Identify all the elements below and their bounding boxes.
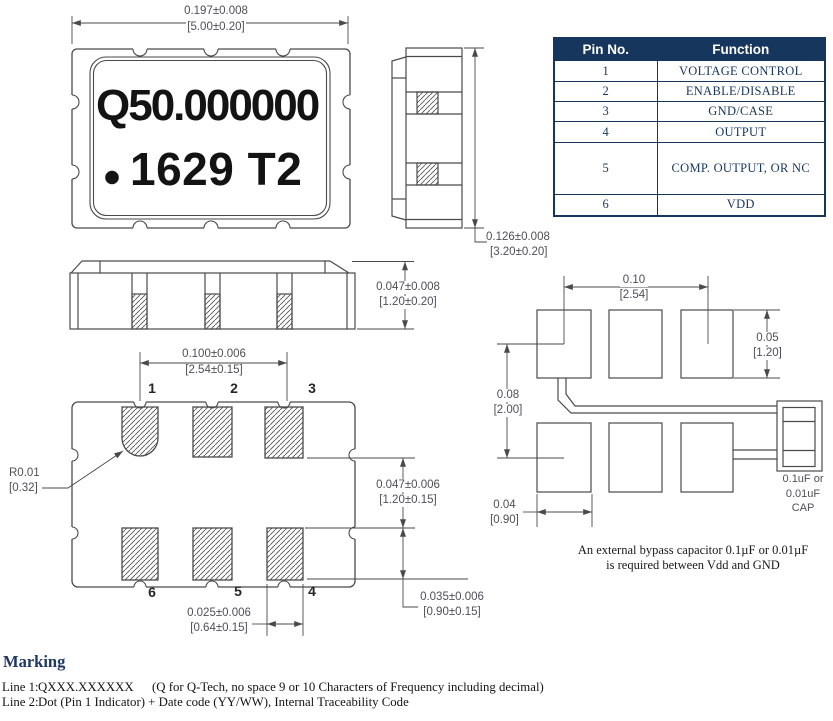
marking-line1: Line 1: QXXX.XXXXXX (Q for Q-Tech, no sp… [2, 680, 830, 695]
table-row: 4 OUTPUT [554, 122, 825, 143]
table-row: 3 GND/CASE [554, 102, 825, 122]
dim-pad-width-inch: 0.025±0.006 [186, 607, 252, 620]
pin-label-5: 5 [230, 584, 246, 598]
marking-line2-label: Line 2: [2, 695, 39, 710]
pad-pin5 [193, 528, 232, 580]
marking-line2-value: Dot (Pin 1 Indicator) + Date code (YY/WW… [38, 695, 409, 710]
lp-row-spacing-mm: [2.00] [491, 404, 525, 417]
dim-body-height-mm: [3.20±0.20] [490, 246, 547, 259]
marking-date-code: 1629 T2 [130, 146, 320, 192]
bypass-note-line2: is required between Vdd and GND [540, 558, 833, 572]
front-view [70, 261, 414, 329]
lp-row-spacing-inch: 0.08 [494, 389, 522, 402]
bypass-note-line1: An external bypass capacitor 0.1µF or 0.… [540, 543, 833, 557]
datasheet-drawing-page: Q50.000000 1629 T2 0.197±0.008 [5.00±0.2… [0, 0, 833, 721]
pin1-indicator-dot [105, 171, 119, 185]
table-row: 6 VDD [554, 195, 825, 216]
table-row: 5 COMP. OUTPUT, OR NC [554, 143, 825, 195]
pad-pin3 [265, 407, 303, 458]
marking-frequency: Q50.000000 [96, 84, 332, 128]
dim-pin1-radius-mm: [0.32] [9, 482, 38, 495]
vdd-trace [558, 378, 777, 413]
marking-line1-note: (Q for Q-Tech, no space 9 or 10 Characte… [152, 680, 544, 695]
cap-value-label: 0.1uF or [773, 473, 833, 486]
dim-seated-height-mm: [1.20±0.20] [377, 296, 439, 309]
lp-pad-width-mm: [0.90] [488, 514, 521, 527]
pin-function-table: Pin No. Function 1 VOLTAGE CONTROL 2 ENA… [553, 37, 826, 217]
pin-table-header-function: Function [657, 38, 825, 61]
pad-pin4 [267, 528, 303, 580]
pad-pin1 [122, 407, 158, 456]
marking-line2: Line 2: Dot (Pin 1 Indicator) + Date cod… [2, 695, 830, 710]
lp-pad-width-inch: 0.04 [491, 499, 518, 512]
table-row: 1 VOLTAGE CONTROL [554, 61, 825, 82]
dim-pad-length-mm: [0.90±0.15] [421, 606, 483, 619]
pin-table-header-pin: Pin No. [554, 38, 657, 61]
cap-label: CAP [773, 502, 833, 515]
dim-body-height-inch: 0.126±0.008 [486, 231, 550, 244]
pin-label-3: 3 [304, 381, 320, 395]
cap-value-label2: 0.01uF [773, 488, 833, 501]
table-row: 2 ENABLE/DISABLE [554, 82, 825, 102]
dim-seated-height-inch: 0.047±0.008 [374, 281, 442, 294]
pin-label-4: 4 [304, 584, 320, 598]
lp-pad-height-mm: [1.20] [751, 347, 784, 360]
marking-line1-label: Line 1: [2, 680, 39, 695]
dim-pad-row-gap-mm: [1.20±0.15] [377, 494, 439, 507]
pad-pin2 [193, 407, 232, 457]
pad-pin6 [122, 528, 158, 580]
dim-pad-row-gap-inch: 0.047±0.006 [374, 479, 442, 492]
marking-line1-value: QXXX.XXXXXX [38, 680, 134, 695]
dim-body-width-mm: [5.00±0.20] [186, 21, 246, 34]
side-view [392, 48, 487, 242]
dim-pad-pitch-inch: 0.100±0.006 [180, 348, 248, 361]
pin-label-6: 6 [144, 585, 160, 599]
dim-pad-length-inch: 0.035±0.006 [419, 591, 485, 604]
dim-pad-pitch-mm: [2.54±0.15] [183, 364, 245, 377]
pin-label-2: 2 [226, 381, 242, 395]
dim-pin1-radius-inch: R0.01 [9, 467, 40, 480]
dim-pad-width-mm: [0.64±0.15] [189, 622, 249, 635]
lp-pitch-inch: 0.10 [620, 274, 648, 287]
lp-pitch-mm: [2.54] [617, 289, 651, 302]
lp-pad-height-inch: 0.05 [754, 332, 781, 345]
bypass-capacitor [777, 401, 822, 471]
pin-label-1: 1 [144, 381, 160, 395]
marking-section-title: Marking [3, 652, 65, 672]
dim-body-width-inch: 0.197±0.008 [183, 5, 249, 18]
